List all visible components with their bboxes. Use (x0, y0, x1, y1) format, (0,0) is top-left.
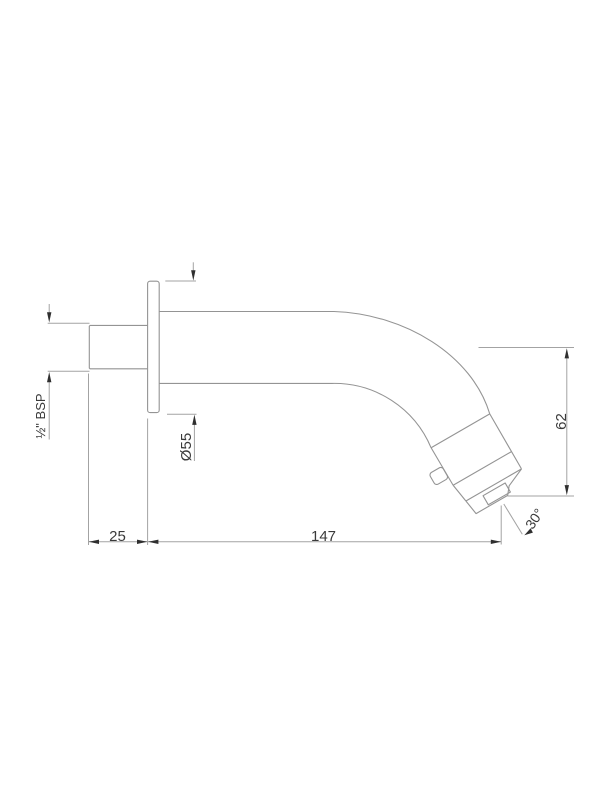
svg-text:½" BSP: ½" BSP (33, 393, 48, 438)
svg-text:62: 62 (553, 413, 570, 430)
svg-text:30°: 30° (522, 505, 547, 531)
svg-text:Ø55: Ø55 (178, 433, 195, 461)
svg-text:147: 147 (311, 528, 336, 545)
svg-text:25: 25 (109, 528, 126, 545)
